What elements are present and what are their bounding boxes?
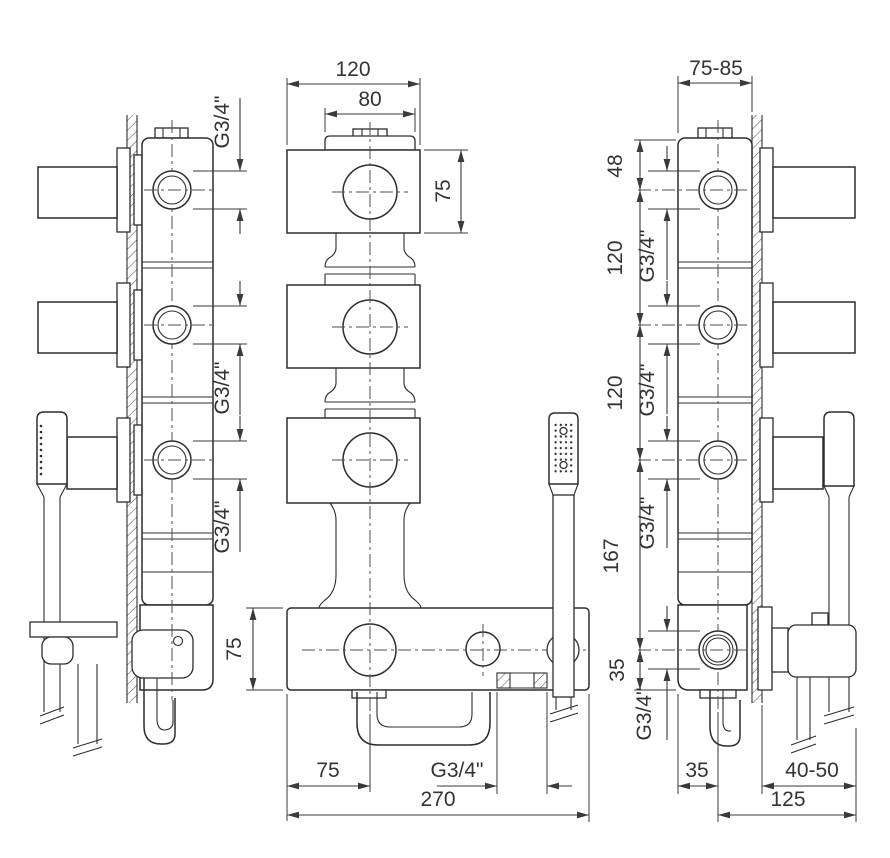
technical-drawing-canvas: G3/4" G3/4" G3/4" (0, 0, 890, 858)
hose-break (550, 705, 578, 722)
spout-block (132, 630, 193, 678)
handshower-handle (553, 495, 574, 697)
escutcheon (760, 418, 773, 502)
escutcheon (758, 607, 772, 690)
dim-plate-width: 80 (358, 88, 381, 111)
bracket-arm (30, 622, 117, 637)
right-side-view: 75-85 48 120 120 167 35 G3/4" G3/4" (600, 57, 856, 822)
dim-port-spacing-a: 120 (604, 240, 627, 275)
dim-block-height: 75 (432, 179, 455, 202)
valve-body (132, 120, 213, 744)
hose-bracket (788, 625, 856, 677)
front-view: 120 80 75 75 75 G3/4" 270 (223, 58, 589, 822)
dim-edge-to-center: 35 (685, 759, 708, 782)
dim-thread-label: G3/4" (636, 364, 659, 417)
escutcheon (117, 148, 130, 232)
dim-outlet-to-bottom: 35 (606, 658, 629, 681)
dim-spout-offset: 75 (316, 759, 339, 782)
elbow (42, 637, 73, 664)
dim-port-to-outlet: 167 (600, 538, 623, 573)
bonnet-cap (698, 128, 732, 138)
dim-thread-label: G3/4" (211, 501, 234, 554)
escutcheon (760, 148, 773, 232)
mount-plate (134, 155, 142, 225)
dim-total-width: 270 (420, 788, 455, 811)
dim-port-spacing-b: 120 (604, 375, 627, 410)
mount-plate (134, 425, 142, 495)
left-side-view: G3/4" G3/4" G3/4" (30, 96, 247, 756)
handle (38, 167, 117, 218)
outlet-connector (772, 628, 788, 672)
dim-thread-label: G3/4" (636, 497, 659, 550)
dim-top-to-port: 48 (604, 154, 627, 177)
dim-center-to-hose: 125 (770, 788, 805, 811)
escutcheon (760, 283, 773, 367)
hose-connector (812, 613, 828, 625)
handle (38, 302, 117, 353)
spray-dots (40, 425, 43, 476)
dim-bar-height: 75 (223, 637, 246, 660)
dim-thread-label: G3/4" (636, 230, 659, 283)
handshower-holder (773, 437, 823, 489)
drawing-page: G3/4" G3/4" G3/4" (0, 0, 890, 858)
handshower-holder (67, 437, 117, 489)
dim-thread-label: G3/4" (211, 96, 234, 149)
hose-break (73, 739, 102, 756)
dim-wall-range: 40-50 (785, 759, 839, 782)
handshower-head (824, 412, 854, 486)
dim-thread-label: G3/4" (633, 688, 656, 741)
escutcheon (117, 418, 130, 502)
dim-front-width: 120 (335, 58, 370, 81)
escutcheon (117, 283, 130, 367)
threaded-port (497, 673, 510, 688)
dim-thread-label: G3/4" (431, 759, 484, 782)
handle (773, 302, 855, 353)
handle (773, 167, 855, 218)
mount-plate (134, 290, 142, 360)
dim-depth-range: 75-85 (689, 57, 743, 80)
valve-column (287, 122, 589, 745)
threaded-port (534, 673, 547, 688)
hose-break (791, 736, 816, 753)
dim-thread-label: G3/4" (211, 362, 234, 415)
